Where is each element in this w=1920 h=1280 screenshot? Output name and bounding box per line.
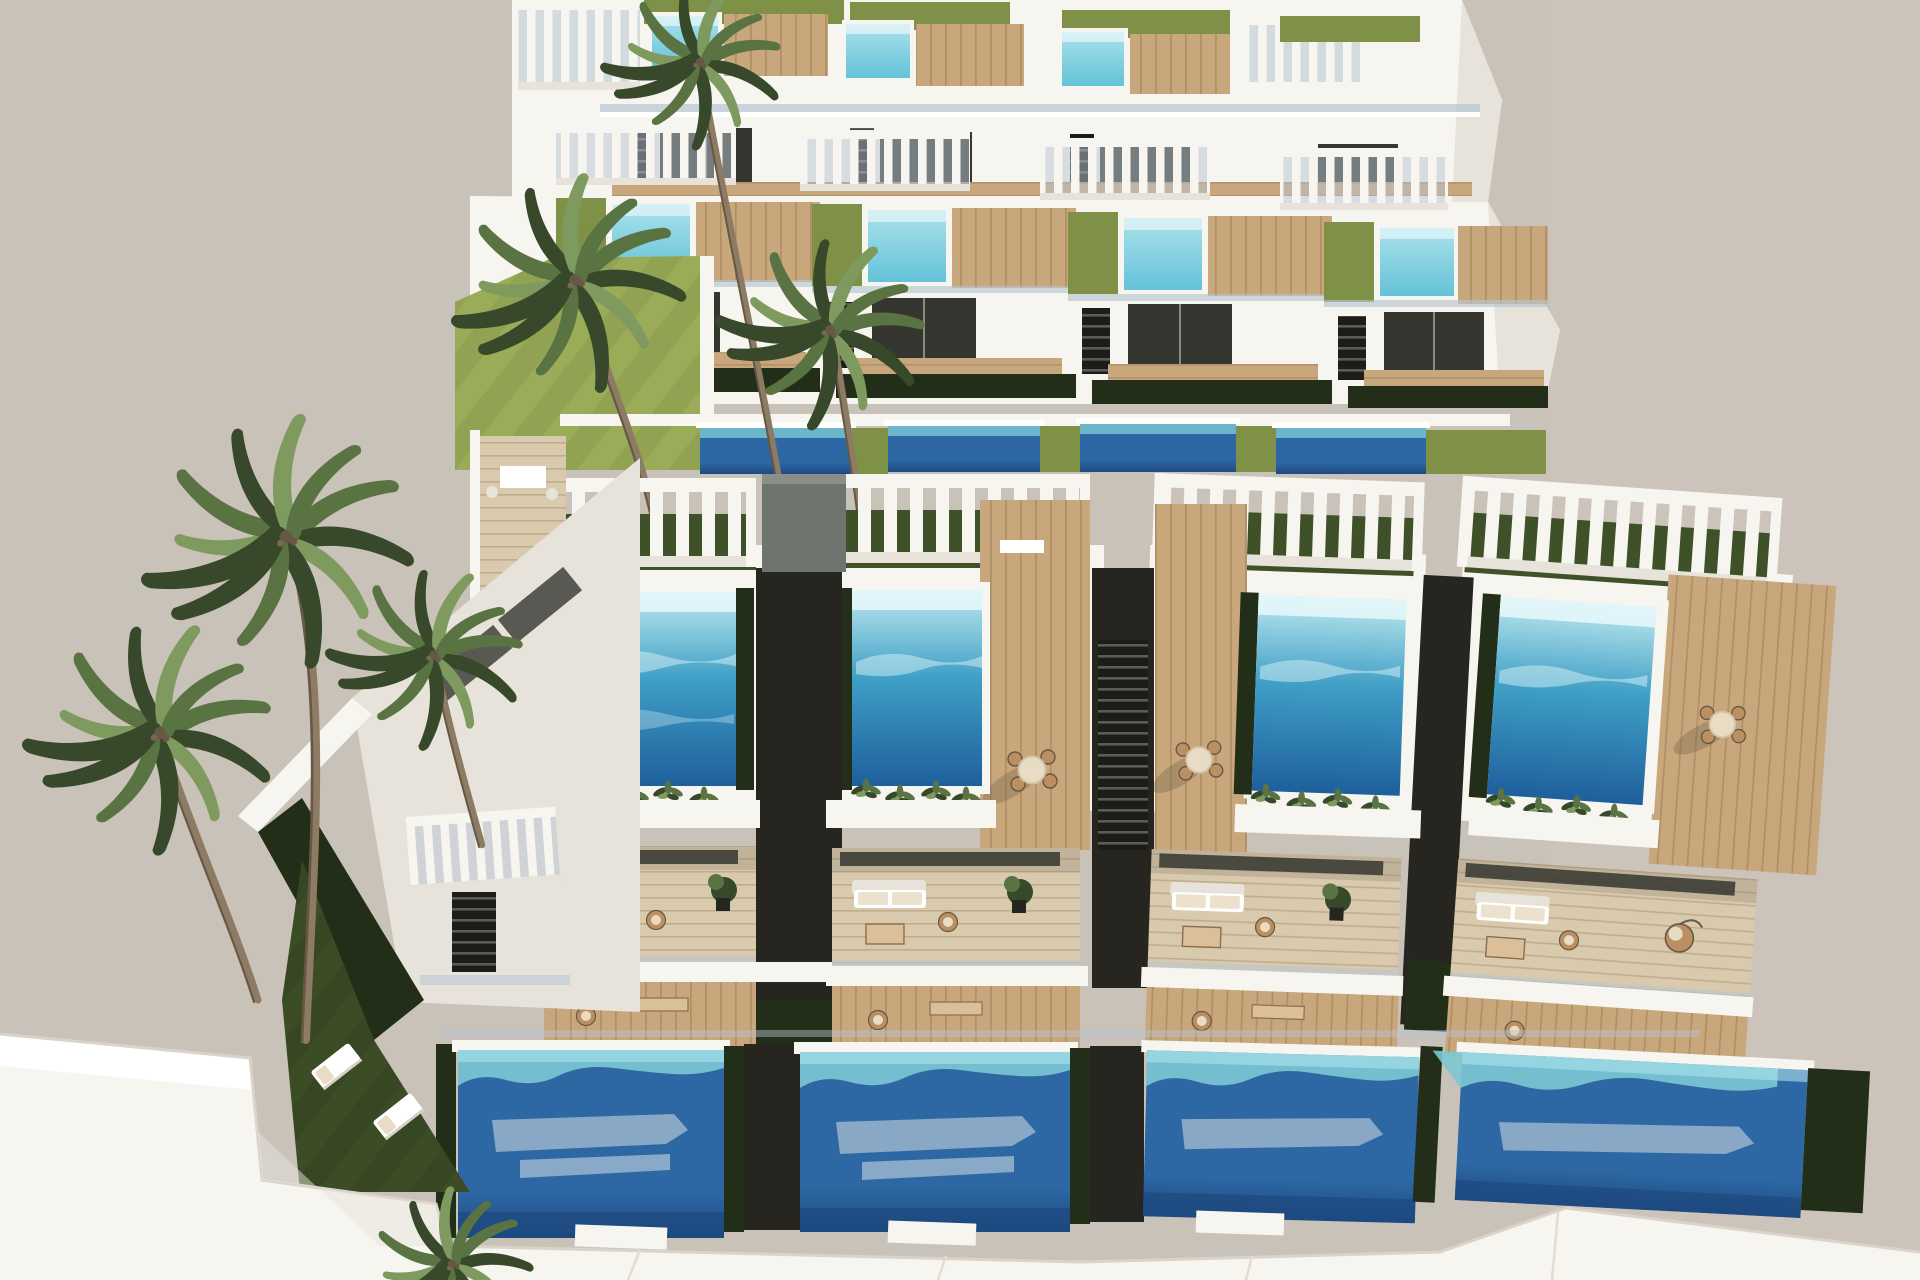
mid-lawn-gap	[852, 428, 888, 474]
front-villa-row	[470, 430, 1836, 1077]
plunge-pool	[1233, 586, 1421, 817]
ground-pool	[1425, 1041, 1815, 1219]
unit-gap-stairwell	[1092, 568, 1154, 988]
middle-rooftop-unit	[1068, 212, 1332, 301]
planter-slab	[826, 800, 996, 828]
mid-lawn-gap	[1236, 426, 1276, 472]
ground-pool	[794, 1042, 1078, 1232]
mid-lawn-gap	[1426, 430, 1546, 474]
ground-pool-row	[436, 1030, 1870, 1238]
ground-pool	[1137, 1040, 1428, 1223]
mid-level-pool	[884, 420, 1044, 472]
walkway-table	[500, 466, 546, 488]
pool-coping-tab	[888, 1221, 977, 1246]
mid-level-pool	[1076, 418, 1240, 472]
middle-rooftop-unit	[1324, 222, 1548, 307]
entry-bridge	[762, 474, 846, 572]
back-rooftop-pool	[1058, 28, 1128, 88]
pool-hedge	[736, 588, 754, 790]
mid-level-pool	[1272, 422, 1430, 474]
pool-coping-tab	[575, 1224, 668, 1249]
pool-coping-tab	[1196, 1210, 1285, 1235]
pool-gap-shade	[1090, 1046, 1144, 1222]
front-dining-deck	[1649, 574, 1837, 875]
villa-development-render	[0, 0, 1920, 1280]
pool-balustrade	[440, 1030, 1700, 1037]
front-balcony	[1147, 849, 1401, 982]
front-dining-deck	[977, 500, 1090, 850]
pool-side-hedge	[1801, 1068, 1870, 1213]
pool-side-hedge	[1070, 1048, 1090, 1224]
side-balustrade	[420, 975, 570, 985]
back-rooftop-pool	[842, 20, 914, 80]
side-spiral-stair	[452, 892, 496, 972]
pool-gap-shade	[744, 1044, 800, 1230]
front-balcony	[832, 848, 1080, 972]
front-dining-deck	[1147, 504, 1247, 852]
plunge-pool	[834, 582, 990, 807]
pool-side-hedge	[724, 1046, 744, 1232]
mid-lawn-gap	[1040, 426, 1080, 472]
ground-pool	[452, 1040, 730, 1238]
render-canvas	[0, 0, 1920, 1280]
plunge-pool	[1468, 587, 1669, 827]
back-roof-lawn	[1280, 16, 1420, 42]
balcony-slab-edge	[826, 966, 1088, 986]
